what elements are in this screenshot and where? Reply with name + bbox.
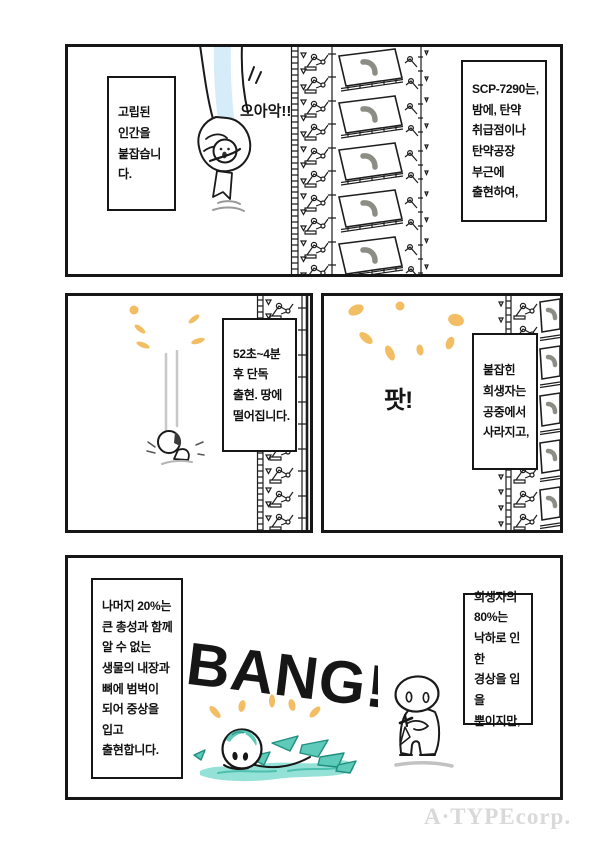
caption-box-vanishes-midair: 붙잡힌 희생자는 공중에서 사라지고, xyxy=(472,333,538,470)
panel-2-left: 52초~4분 후 단독 출현. 땅에 떨어집니다. xyxy=(65,293,313,533)
caption-box-remaining-20-percent: 나머지 20%는 큰 총성과 함께 알 수 없는 생물의 내장과 뼈에 범벅이 … xyxy=(91,578,183,779)
watermark-text: A·TYPEcorp. xyxy=(424,804,594,834)
panel-1: 으아악!! 고립된 인간을 붙잡습니다. SCP-7290는, 밤에, 탄약 취… xyxy=(65,44,563,277)
sparkle-marks-art xyxy=(123,302,218,357)
survivor-figure-art xyxy=(388,673,460,773)
vanish-burst-art xyxy=(338,298,473,370)
splattered-victim-art xyxy=(188,693,373,793)
panel-3: 나머지 20%는 큰 총성과 함께 알 수 없는 생물의 내장과 뼈에 범벅이 … xyxy=(65,555,563,800)
pop-sfx-text: 팟! xyxy=(384,380,412,415)
caption-box-80-percent-minor-injury: 희생자의 80%는 낙하로 인한 경상을 입을 뿐이지만, xyxy=(463,593,533,725)
hand-grabbing-victim-art xyxy=(180,45,272,215)
comic-page: { "watermark": "A·TYPEcorp.", "colors": … xyxy=(0,0,600,842)
caption-box-falls-to-ground: 52초~4분 후 단독 출현. 땅에 떨어집니다. xyxy=(222,318,297,452)
panel-2-right: 팟! 붙잡힌 희생자는 공중에서 사라지고, xyxy=(321,293,563,533)
caption-box-scp-7290-appears: SCP-7290는, 밤에, 탄약 취급점이나 탄약공장 부근에 출현하여, xyxy=(461,60,547,222)
machinery-strip-art xyxy=(290,47,430,274)
falling-victim-art xyxy=(144,350,206,468)
caption-box-isolated-human: 고립된 인간을 붙잡습니다. xyxy=(107,76,176,211)
scream-sfx-text: 으아악!! xyxy=(240,100,291,121)
